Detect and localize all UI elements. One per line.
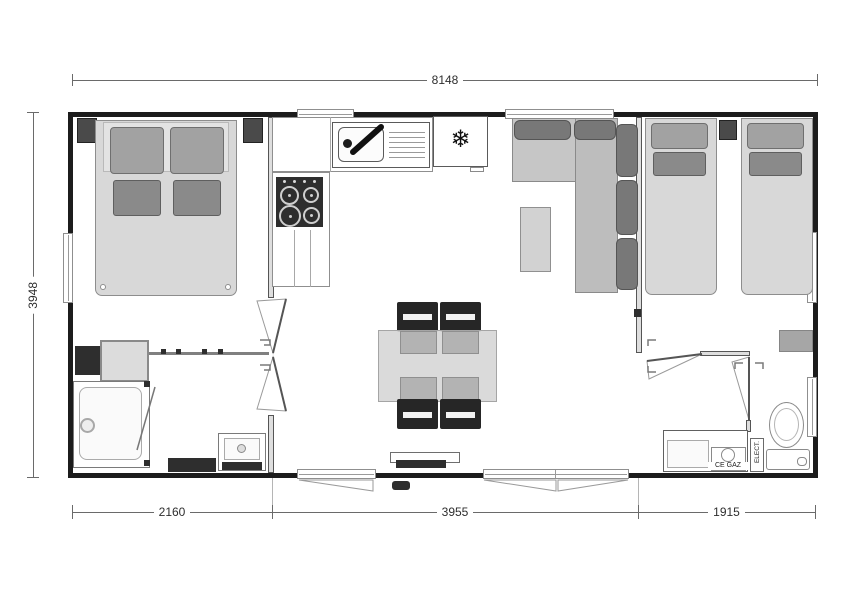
- window-opening-fan: [558, 480, 628, 491]
- window-opening-fan: [484, 480, 556, 491]
- door-swing-overlay: [0, 0, 850, 600]
- floor-plan: 8148 3948 2160 3955 1915: [0, 0, 850, 600]
- door-handle: [260, 340, 270, 345]
- door-master-bedroom: [257, 299, 286, 353]
- shower-door: [137, 387, 155, 450]
- window-opening-fan: [299, 480, 373, 491]
- door-handle: [260, 365, 270, 370]
- faucet-handle: [353, 127, 381, 152]
